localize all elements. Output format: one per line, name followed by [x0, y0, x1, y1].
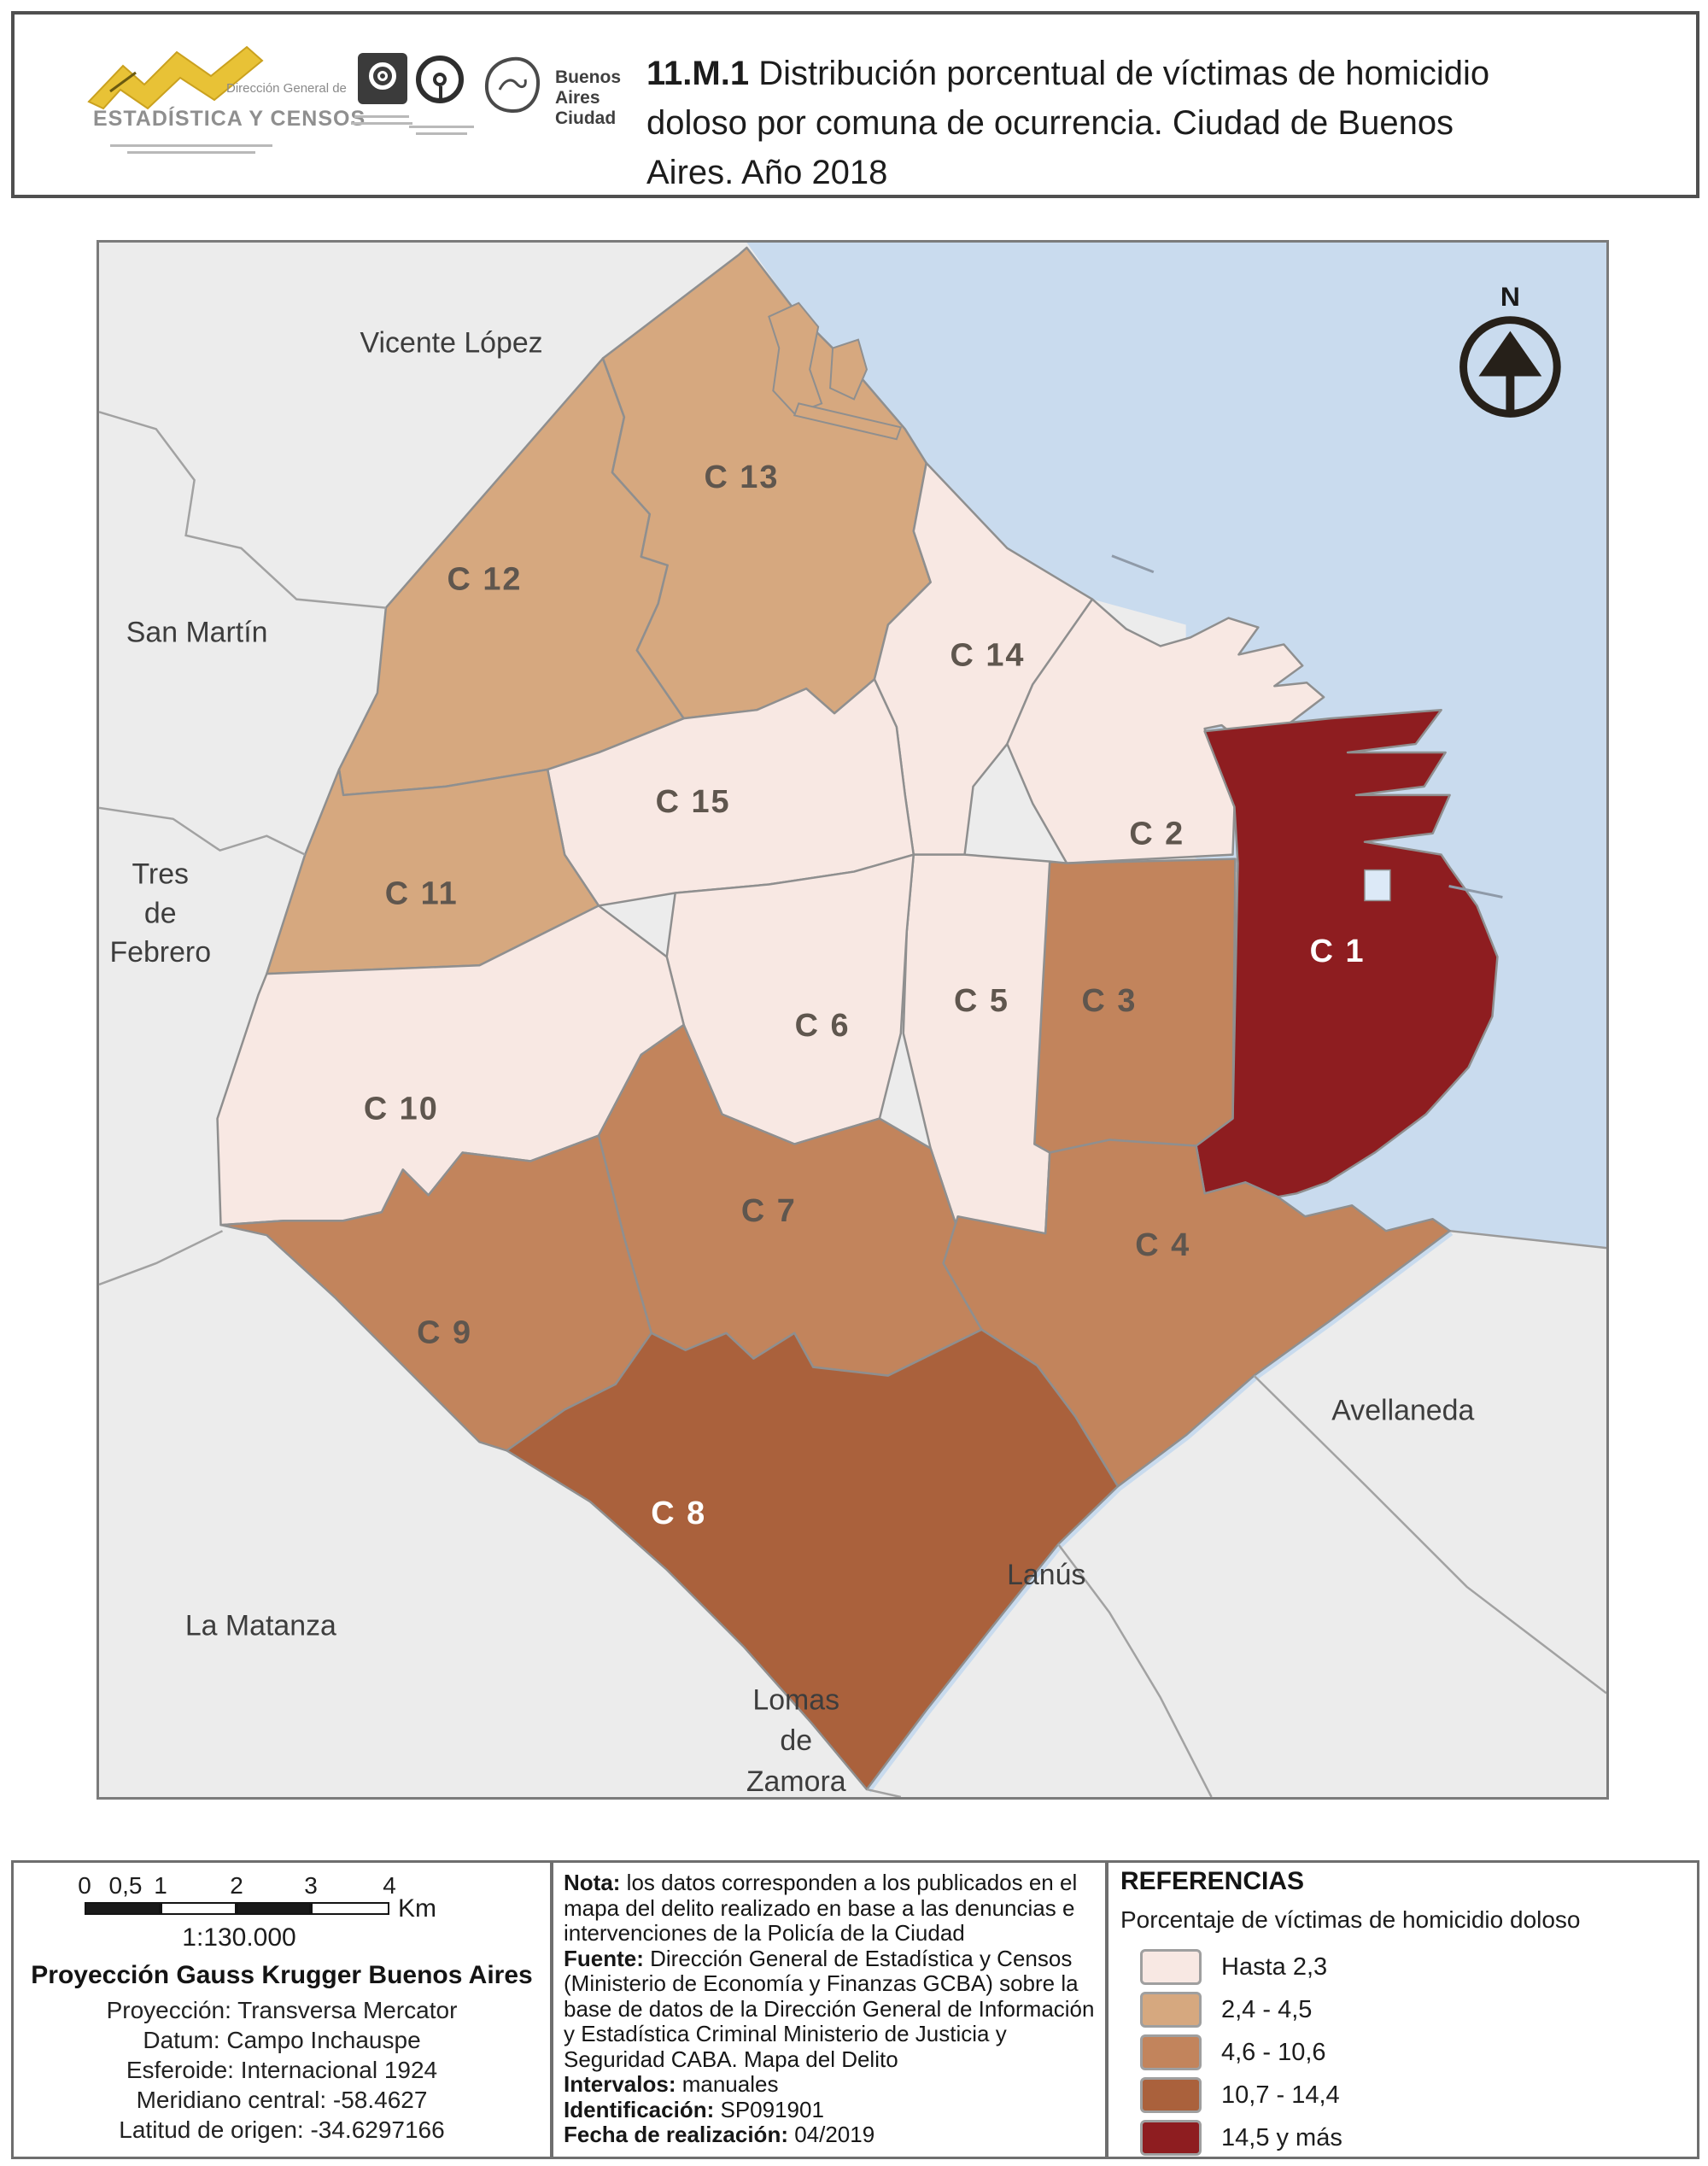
neighbor-label-6: Lomas [752, 1683, 839, 1716]
commune-label-c15: C 15 [656, 784, 731, 820]
commune-label-c6: C 6 [795, 1008, 851, 1044]
neighbor-label-7: de [780, 1724, 812, 1757]
dock-basin [1365, 870, 1390, 901]
choropleth-map: N C 1C 2C 3C 4C 5C 6C 7C 8C 9C 10C 11C 1… [99, 243, 1606, 1797]
estadistica-logo-tagline-bar2 [127, 151, 255, 154]
emblem-ring-logo-icon [416, 56, 464, 103]
title-line-1: Distribución porcentual de víctimas de h… [758, 55, 1489, 92]
estadistica-logo-bigtext: ESTADÍSTICA Y CENSOS [93, 107, 366, 132]
scale-segment-3 [311, 1902, 389, 1915]
legend-label-3: 10,7 - 14,4 [1221, 2081, 1340, 2110]
scale-tick-0: 0 [78, 1872, 91, 1900]
scale-ratio: 1:130.000 [137, 1923, 342, 1952]
legend-label-4: 14,5 y más [1221, 2124, 1342, 2152]
commune-label-c4: C 4 [1135, 1227, 1190, 1263]
neighbor-label-9: Lanús [1007, 1559, 1085, 1591]
neighbor-label-1: San Martín [126, 616, 268, 648]
projection-details: Proyección: Transversa MercatorDatum: Ca… [17, 1995, 547, 2145]
scale-tick-1: 1 [154, 1872, 167, 1900]
commune-label-c8: C 8 [651, 1496, 706, 1531]
page: Dirección General de ESTADÍSTICA Y CENSO… [0, 0, 1708, 2166]
scale-tick-0,5: 0,5 [109, 1872, 143, 1900]
neighbor-label-2: Tres [132, 858, 189, 891]
commune-label-c3: C 3 [1082, 983, 1138, 1019]
commune-label-c2: C 2 [1129, 817, 1184, 852]
scale-tick-4: 4 [383, 1872, 396, 1900]
header-box: Dirección General de ESTADÍSTICA Y CENSO… [11, 11, 1699, 198]
scale-segment-0 [85, 1902, 161, 1915]
title-line-3: Aires. Año 2018 [646, 148, 1697, 197]
legend-subtitle: Porcentaje de víctimas de homicidio dolo… [1120, 1906, 1581, 1934]
map-frame: N C 1C 2C 3C 4C 5C 6C 7C 8C 9C 10C 11C 1… [97, 240, 1609, 1800]
buenos-aires-ciudad-logo-icon [483, 56, 542, 115]
scale-segment-2 [237, 1902, 311, 1915]
legend-title: REFERENCIAS [1120, 1867, 1304, 1896]
buenos-aires-ciudad-logo-text: BuenosAiresCiudad [555, 67, 621, 129]
commune-label-c9: C 9 [417, 1315, 472, 1351]
commune-label-c1: C 1 [1310, 934, 1366, 969]
map-title: 11.M.1 Distribución porcentual de víctim… [646, 49, 1697, 197]
commune-label-c5: C 5 [954, 983, 1009, 1019]
neighbor-label-4: Febrero [109, 936, 211, 969]
neighbor-label-0: Vicente López [360, 327, 543, 360]
projection-heading: Proyección Gauss Krugger Buenos Aires [17, 1961, 547, 1990]
estadistica-logo-tagline-bar [110, 144, 272, 147]
neighbor-label-3: de [144, 897, 177, 929]
title-code: 11.M.1 [646, 55, 749, 92]
estadistica-logo-smalltext: Dirección General de [226, 81, 347, 96]
scale-unit: Km [398, 1894, 436, 1923]
scale-segment-1 [161, 1902, 237, 1915]
north-label: N [1500, 281, 1520, 312]
ministry-logo-caption-bar [354, 115, 409, 118]
title-line-2: doloso por comuna de ocurrencia. Ciudad … [646, 98, 1697, 148]
legend-swatch-2 [1140, 2034, 1202, 2070]
commune-label-c14: C 14 [950, 637, 1025, 673]
ministry-logo-caption-bar2 [351, 122, 412, 125]
neighbor-label-8: Zamora [746, 1765, 846, 1797]
legend-swatch-3 [1140, 2077, 1202, 2113]
scale-tick-2: 2 [230, 1872, 243, 1900]
legend-swatch-4 [1140, 2120, 1202, 2156]
commune-label-c13: C 13 [704, 460, 779, 495]
legend-swatch-0 [1140, 1949, 1202, 1985]
scale-tick-3: 3 [304, 1872, 318, 1900]
legend-label-2: 4,6 - 10,6 [1221, 2039, 1326, 2067]
emblem-logo-caption-bar2 [416, 132, 467, 135]
estadistica-censos-logo-icon [85, 40, 281, 117]
legend-swatch-1 [1140, 1992, 1202, 2028]
commune-label-c12: C 12 [447, 562, 522, 598]
commune-label-c10: C 10 [364, 1092, 439, 1127]
neighbor-label-5: La Matanza [185, 1610, 336, 1642]
ministry-square-logo-icon [358, 53, 407, 104]
emblem-logo-caption-bar [409, 126, 474, 128]
commune-label-c11: C 11 [385, 875, 459, 911]
neighbor-label-10: Avellaneda [1331, 1394, 1474, 1426]
commune-label-c7: C 7 [741, 1193, 797, 1229]
legend-label-1: 2,4 - 4,5 [1221, 1996, 1312, 2024]
legend-label-0: Hasta 2,3 [1221, 1953, 1327, 1982]
notes-text: Nota: los datos corresponden a los publi… [564, 1870, 1097, 2148]
